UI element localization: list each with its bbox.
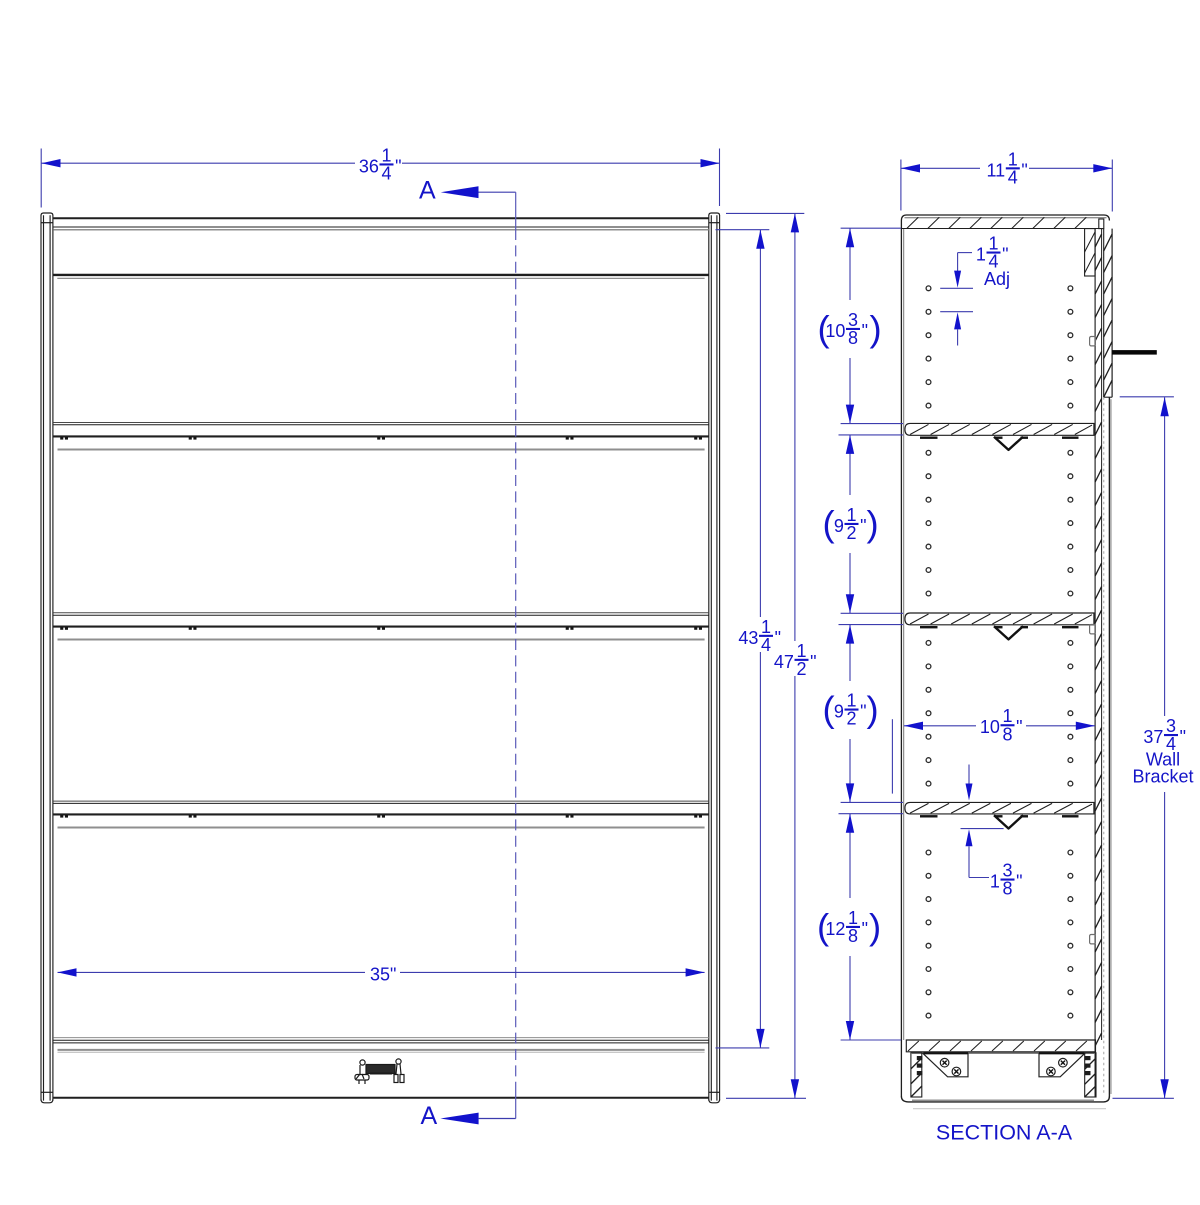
svg-text:1: 1 — [761, 617, 771, 637]
svg-text:1: 1 — [988, 234, 998, 254]
svg-text:": " — [775, 628, 781, 648]
svg-text:3: 3 — [848, 310, 858, 330]
svg-text:10: 10 — [980, 717, 1000, 737]
svg-text:": " — [810, 652, 816, 672]
svg-text:1: 1 — [846, 691, 856, 711]
svg-text:4: 4 — [1008, 168, 1018, 188]
svg-text:): ) — [867, 688, 879, 729]
svg-text:": " — [860, 516, 866, 536]
svg-text:8: 8 — [848, 328, 858, 348]
svg-text:1: 1 — [796, 641, 806, 661]
svg-text:8: 8 — [1002, 724, 1012, 744]
svg-text:): ) — [870, 308, 882, 349]
svg-text:4: 4 — [761, 635, 771, 655]
svg-text:37: 37 — [1143, 727, 1163, 747]
svg-text:": " — [1002, 245, 1008, 265]
svg-text:Bracket: Bracket — [1132, 767, 1193, 787]
svg-text:10: 10 — [825, 321, 845, 341]
svg-text:(: ( — [823, 503, 835, 544]
svg-text:9: 9 — [834, 516, 844, 536]
svg-text:1: 1 — [846, 505, 856, 525]
svg-text:": " — [1016, 872, 1022, 892]
svg-text:(: ( — [823, 688, 835, 729]
svg-text:1: 1 — [848, 908, 858, 928]
svg-text:": " — [862, 321, 868, 341]
svg-text:): ) — [867, 503, 879, 544]
svg-text:": " — [862, 919, 868, 939]
svg-text:): ) — [869, 906, 881, 947]
svg-text:36: 36 — [359, 156, 379, 176]
svg-text:43: 43 — [738, 628, 758, 648]
svg-text:11: 11 — [987, 160, 1006, 180]
svg-text:": " — [860, 702, 866, 722]
svg-text:3: 3 — [1166, 716, 1176, 736]
svg-text:8: 8 — [1002, 879, 1012, 899]
svg-text:2: 2 — [846, 523, 856, 543]
svg-text:": " — [1016, 717, 1022, 737]
svg-text:1: 1 — [1002, 706, 1012, 726]
svg-text:47: 47 — [774, 652, 794, 672]
svg-text:9: 9 — [834, 702, 844, 722]
svg-text:1: 1 — [990, 872, 1000, 892]
svg-text:35": 35" — [370, 964, 396, 984]
svg-text:1: 1 — [1008, 149, 1018, 169]
svg-text:Adj: Adj — [984, 269, 1010, 289]
svg-text:": " — [1021, 160, 1027, 180]
svg-text:1: 1 — [381, 145, 391, 165]
svg-text:": " — [395, 156, 401, 176]
svg-text:SECTION A-A: SECTION A-A — [936, 1120, 1073, 1144]
svg-text:A: A — [420, 1102, 437, 1130]
svg-text:12: 12 — [825, 919, 845, 939]
svg-text:8: 8 — [848, 926, 858, 946]
svg-text:1: 1 — [976, 245, 986, 265]
svg-text:3: 3 — [1002, 861, 1012, 881]
svg-text:2: 2 — [796, 659, 806, 679]
svg-text:": " — [1180, 727, 1186, 747]
svg-text:A: A — [419, 176, 436, 204]
svg-text:2: 2 — [846, 709, 856, 729]
svg-text:4: 4 — [381, 164, 391, 184]
